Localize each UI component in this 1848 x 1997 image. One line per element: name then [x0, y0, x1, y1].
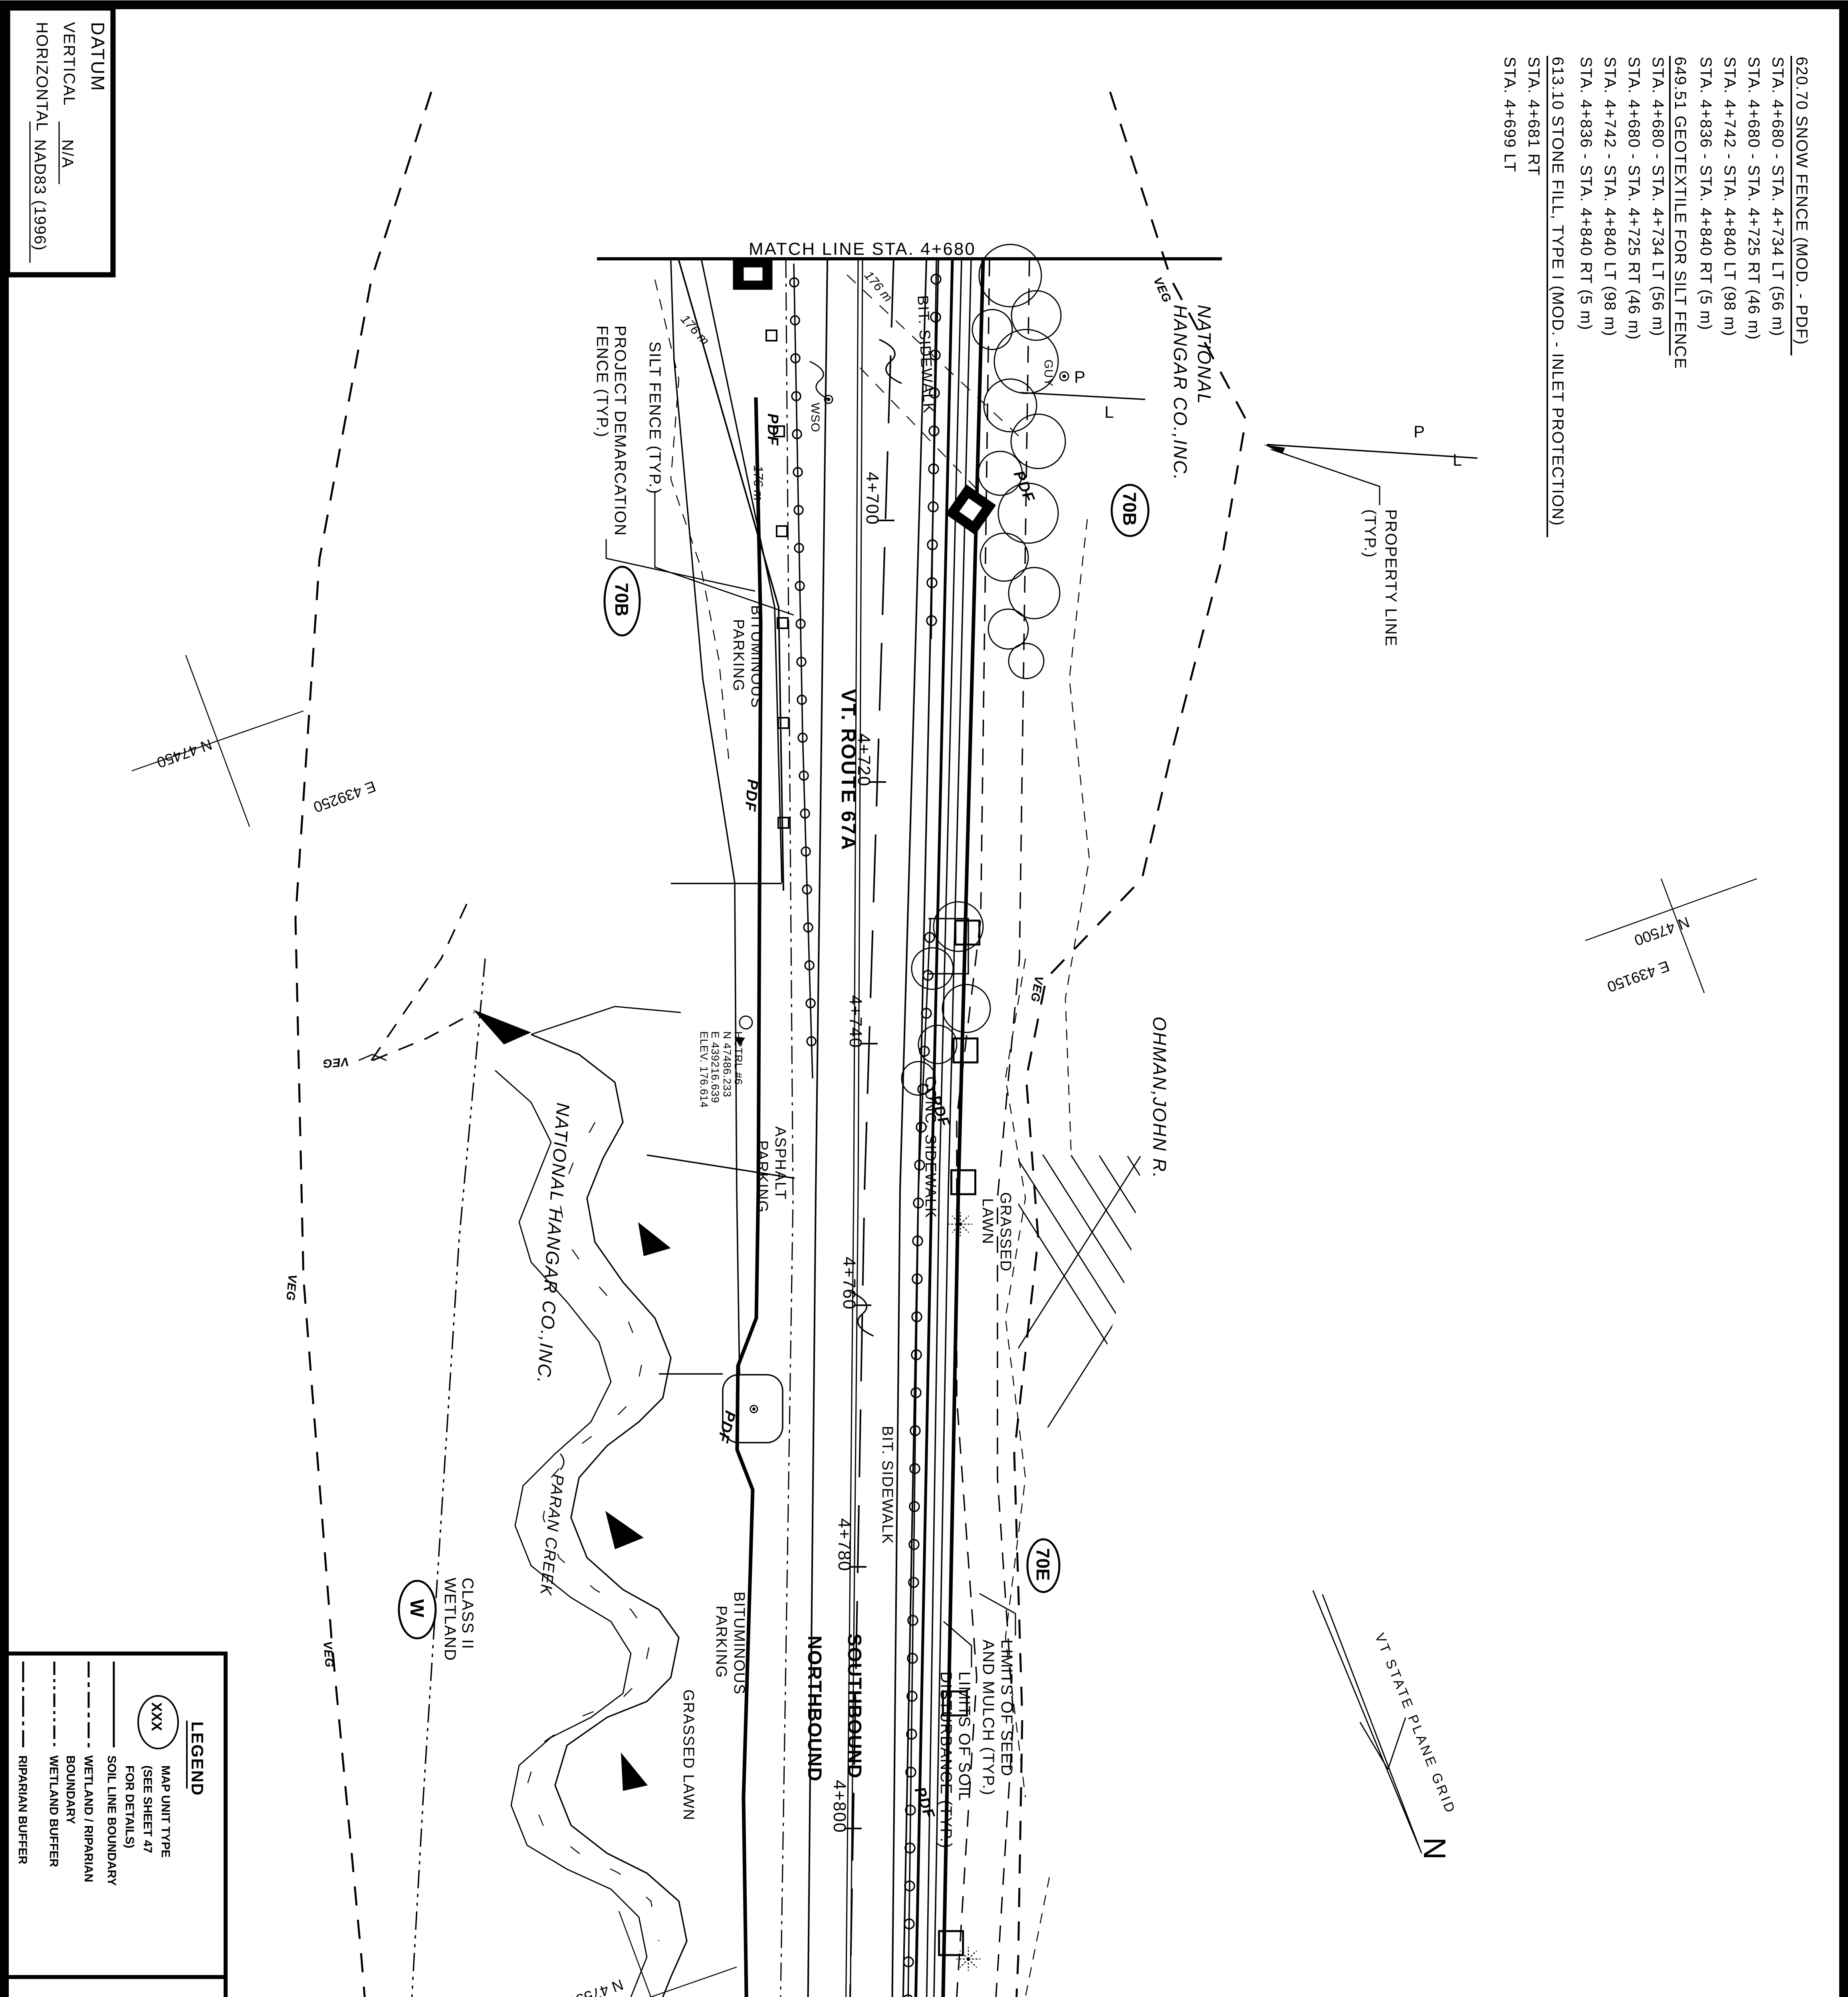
svg-text:NAD83 (1996): NAD83 (1996)	[31, 139, 49, 251]
svg-text:WETLAND BUFFER: WETLAND BUFFER	[47, 1755, 60, 1867]
svg-text:E 439150: E 439150	[1605, 957, 1672, 995]
svg-text:VT. ROUTE 67A: VT. ROUTE 67A	[837, 689, 860, 851]
svg-text:VERTICAL: VERTICAL	[60, 22, 78, 106]
svg-text:P: P	[1414, 422, 1425, 441]
svg-text:LIMITS OF SEED: LIMITS OF SEED	[998, 1640, 1015, 1777]
svg-text:N/A: N/A	[59, 139, 76, 169]
svg-text:WETLAND: WETLAND	[441, 1578, 459, 1662]
svg-text:620.70 SNOW FENCE (MOD. - PDF): 620.70 SNOW FENCE (MOD. - PDF)	[1793, 57, 1810, 345]
svg-text:N: N	[1417, 1837, 1452, 1860]
svg-text:CLASS II: CLASS II	[459, 1578, 476, 1650]
svg-text:W: W	[406, 1599, 427, 1618]
svg-text:L: L	[1453, 451, 1462, 469]
svg-text:4+760: 4+760	[839, 1257, 859, 1310]
svg-text:NATIONAL: NATIONAL	[1194, 305, 1215, 405]
svg-text:STA. 4+680 - STA. 4+734 LT (56: STA. 4+680 - STA. 4+734 LT (56 m)	[1769, 57, 1787, 337]
svg-text:(SEE SHEET 47: (SEE SHEET 47	[141, 1765, 154, 1853]
svg-text:P: P	[1074, 367, 1085, 386]
svg-text:LAWN: LAWN	[979, 1198, 996, 1245]
svg-text:PDF: PDF	[742, 778, 761, 812]
svg-text:OHMAN,JOHN R.: OHMAN,JOHN R.	[1149, 1016, 1170, 1179]
svg-text:ELEV. 176.614: ELEV. 176.614	[698, 1031, 710, 1108]
svg-text:PARKING: PARKING	[713, 1606, 730, 1678]
svg-text:PDF: PDF	[714, 1409, 739, 1445]
svg-text:613.10 STONE FILL, TYPE I (MOD: 613.10 STONE FILL, TYPE I (MOD. - INLET …	[1549, 57, 1566, 526]
svg-text:N 47500: N 47500	[1632, 913, 1691, 949]
svg-text:4+800: 4+800	[830, 1780, 849, 1833]
svg-text:70E: 70E	[1033, 1548, 1053, 1581]
svg-text:NATIONAL HANGAR CO.,INC.: NATIONAL HANGAR CO.,INC.	[533, 1102, 574, 1385]
svg-text:SOIL LINE BOUNDARY: SOIL LINE BOUNDARY	[105, 1755, 118, 1886]
svg-text:VEG: VEG	[321, 1641, 336, 1668]
svg-text:WSO: WSO	[809, 403, 822, 433]
svg-text:70B: 70B	[611, 583, 632, 616]
svg-text:E 439216.639: E 439216.639	[709, 1031, 721, 1103]
svg-text:DATUM: DATUM	[87, 22, 108, 92]
svg-text:176 m: 176 m	[862, 268, 896, 304]
svg-text:RIPARIAN BUFFER: RIPARIAN BUFFER	[16, 1755, 29, 1864]
svg-text:4+740: 4+740	[846, 995, 865, 1048]
svg-text:PDF: PDF	[764, 413, 781, 446]
svg-text:4+780: 4+780	[835, 1518, 854, 1572]
svg-text:VEG: VEG	[1151, 275, 1174, 305]
svg-text:VEG: VEG	[322, 1055, 349, 1070]
svg-text:BIT. SIDEWALK: BIT. SIDEWALK	[879, 1426, 896, 1544]
svg-text:PROPERTY LINE: PROPERTY LINE	[1382, 509, 1400, 647]
svg-text:GUY: GUY	[1042, 359, 1055, 387]
svg-text:(TYP.): (TYP.)	[1361, 509, 1379, 558]
svg-text:FENCE (TYP.): FENCE (TYP.)	[593, 326, 611, 438]
svg-text:XXX: XXX	[149, 1702, 165, 1731]
svg-text:WETLAND / RIPARIAN: WETLAND / RIPARIAN	[82, 1755, 95, 1882]
svg-text:E 439250: E 439250	[311, 778, 378, 816]
svg-text:AND MULCH (TYP.): AND MULCH (TYP.)	[980, 1640, 997, 1796]
svg-text:STA. 4+742 - STA. 4+840 LT (98: STA. 4+742 - STA. 4+840 LT (98 m)	[1721, 57, 1739, 337]
svg-text:HORIZONTAL: HORIZONTAL	[33, 22, 51, 132]
svg-text:STA. 4+680 - STA. 4+734 LT (56: STA. 4+680 - STA. 4+734 LT (56 m)	[1649, 57, 1667, 337]
svg-text:MAP UNIT TYPE: MAP UNIT TYPE	[159, 1765, 172, 1858]
svg-text:LIMITS OF SOIL: LIMITS OF SOIL	[956, 1671, 973, 1802]
svg-text:PARKING: PARKING	[730, 619, 747, 692]
svg-text:VEG: VEG	[284, 1274, 299, 1301]
svg-text:N 47450: N 47450	[155, 736, 214, 771]
svg-text:GRASSED LAWN: GRASSED LAWN	[680, 1689, 697, 1821]
svg-text:N 47550: N 47550	[566, 1976, 625, 1997]
svg-text:649.51 GEOTEXTILE FOR SILT FEN: 649.51 GEOTEXTILE FOR SILT FENCE	[1672, 57, 1689, 369]
svg-text:PARKING: PARKING	[754, 1140, 771, 1213]
svg-text:FOR DETAILS): FOR DETAILS)	[123, 1765, 136, 1848]
svg-text:PARAN CREEK: PARAN CREEK	[537, 1473, 567, 1597]
svg-text:LEGEND: LEGEND	[188, 1721, 207, 1796]
svg-text:DISTURBANCE (TYP.): DISTURBANCE (TYP.)	[937, 1671, 955, 1849]
svg-text:STA. 4+680 - STA. 4+725 RT (46: STA. 4+680 - STA. 4+725 RT (46 m)	[1745, 57, 1763, 340]
svg-text:STA. 4+699 LT: STA. 4+699 LT	[1501, 57, 1519, 173]
svg-text:PROJECT DEMARCATION: PROJECT DEMARCATION	[611, 326, 629, 536]
svg-text:VT STATE PLANE GRID: VT STATE PLANE GRID	[1372, 1631, 1459, 1817]
svg-text:STA. 4+836 - STA. 4+840 RT (5: STA. 4+836 - STA. 4+840 RT (5 m)	[1697, 57, 1715, 331]
svg-text:HANGAR CO.,INC.: HANGAR CO.,INC.	[1170, 305, 1191, 481]
svg-text:PDF: PDF	[911, 1785, 938, 1821]
svg-text:176 m: 176 m	[751, 465, 765, 501]
svg-text:STA. 4+681 RT: STA. 4+681 RT	[1525, 57, 1543, 176]
svg-text:SILT FENCE (TYP.): SILT FENCE (TYP.)	[646, 341, 664, 494]
svg-text:MATCH LINE STA. 4+680: MATCH LINE STA. 4+680	[749, 239, 976, 259]
svg-text:BOUNDARY: BOUNDARY	[64, 1755, 77, 1824]
svg-text:N 47486.233: N 47486.233	[721, 1031, 733, 1098]
svg-text:4+700: 4+700	[863, 472, 882, 525]
svg-text:SOUTHBOUND: SOUTHBOUND	[844, 1634, 865, 1779]
svg-text:GRASSED: GRASSED	[997, 1192, 1014, 1272]
svg-text:70B: 70B	[1119, 492, 1140, 526]
svg-text:BITUMINOUS: BITUMINOUS	[748, 605, 765, 709]
svg-text:NORTHBOUND: NORTHBOUND	[804, 1636, 825, 1782]
svg-text:STA. 4+680 - STA. 4+725 RT (46: STA. 4+680 - STA. 4+725 RT (46 m)	[1625, 57, 1643, 340]
svg-text:STA. 4+836 - STA. 4+840 RT (5: STA. 4+836 - STA. 4+840 RT (5 m)	[1577, 57, 1595, 331]
svg-text:ASPHALT: ASPHALT	[772, 1126, 789, 1200]
svg-text:L: L	[1104, 403, 1114, 421]
svg-text:BITUMINOUS: BITUMINOUS	[731, 1592, 748, 1695]
svg-text:STA. 4+742 - STA. 4+840 LT (98: STA. 4+742 - STA. 4+840 LT (98 m)	[1601, 57, 1619, 337]
